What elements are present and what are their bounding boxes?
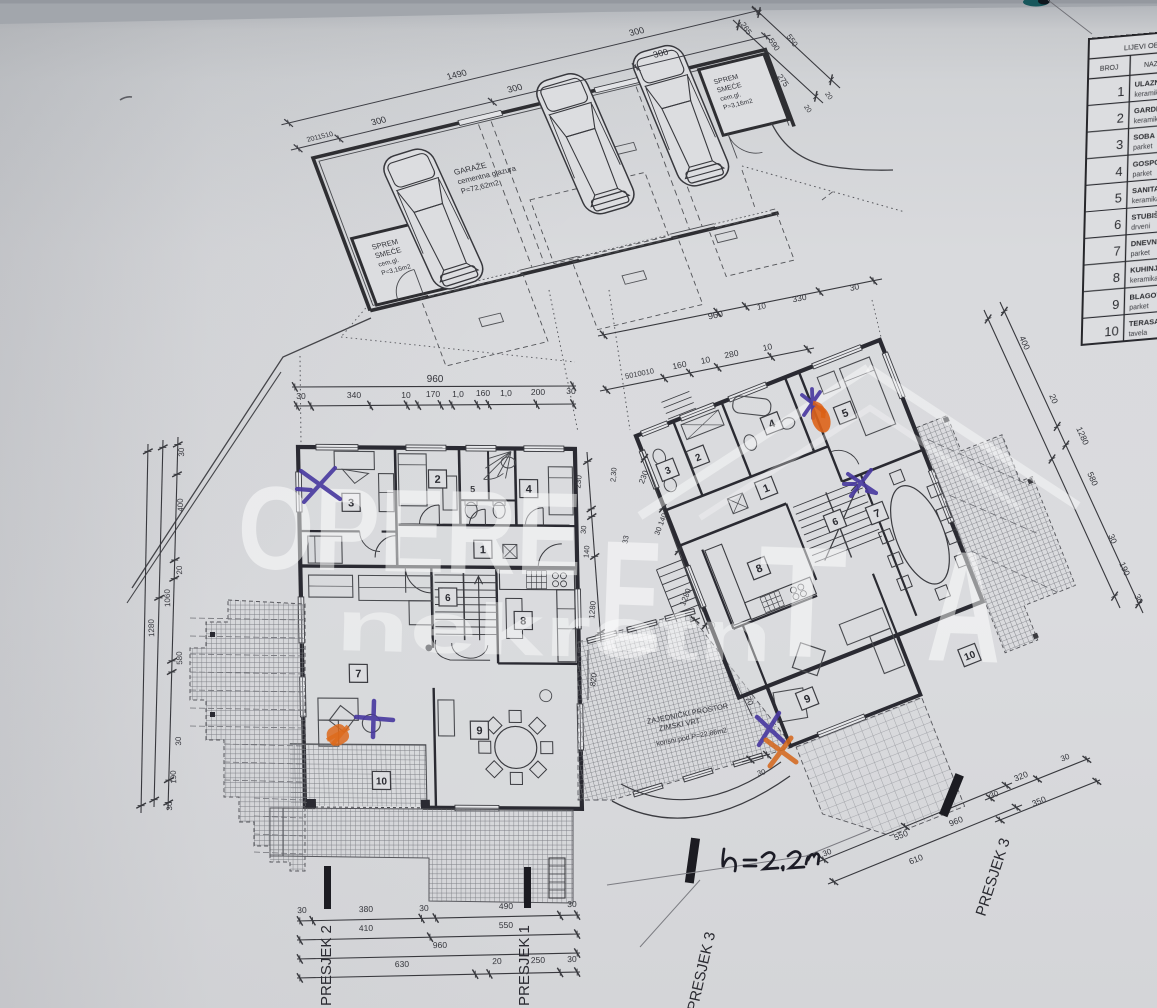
svg-text:400: 400 — [176, 498, 185, 512]
svg-text:960: 960 — [433, 940, 448, 950]
svg-text:960: 960 — [427, 374, 444, 385]
svg-text:340: 340 — [347, 390, 361, 400]
svg-text:9: 9 — [1112, 297, 1120, 313]
svg-text:410: 410 — [359, 923, 374, 933]
svg-text:10: 10 — [401, 390, 411, 400]
svg-text:380: 380 — [359, 904, 374, 914]
svg-text:190: 190 — [169, 770, 178, 784]
svg-text:30: 30 — [566, 386, 576, 396]
svg-text:580: 580 — [175, 651, 184, 665]
svg-text:1,0: 1,0 — [452, 389, 464, 399]
svg-text:7: 7 — [1113, 243, 1121, 259]
svg-text:5: 5 — [1115, 190, 1123, 206]
svg-text:4: 4 — [1115, 164, 1123, 180]
svg-text:PRESJEK 1: PRESJEK 1 — [516, 925, 533, 1006]
svg-text:OPERE: OPERE — [236, 462, 583, 601]
svg-text:30: 30 — [174, 736, 183, 746]
svg-text:200: 200 — [531, 387, 545, 397]
svg-text:550: 550 — [499, 920, 514, 930]
svg-text:20: 20 — [492, 956, 502, 966]
svg-text:490: 490 — [499, 901, 514, 911]
svg-text:7: 7 — [355, 668, 361, 680]
svg-text:10: 10 — [376, 776, 388, 787]
svg-text:9: 9 — [476, 725, 482, 737]
svg-text:6: 6 — [1114, 217, 1122, 233]
svg-text:3: 3 — [1116, 137, 1124, 153]
svg-text:1: 1 — [1117, 84, 1125, 100]
svg-text:160: 160 — [476, 388, 490, 398]
svg-text:1280: 1280 — [147, 618, 157, 637]
svg-text:1060: 1060 — [163, 588, 173, 607]
svg-text:2,30: 2,30 — [608, 467, 618, 482]
svg-text:nekretn: nekretn — [335, 586, 774, 677]
svg-text:30: 30 — [177, 447, 186, 457]
svg-text:170: 170 — [426, 389, 440, 399]
svg-text:PRESJEK 2: PRESJEK 2 — [318, 925, 335, 1006]
svg-text:10: 10 — [1104, 323, 1119, 339]
svg-text:30: 30 — [296, 391, 306, 401]
svg-text:20: 20 — [175, 565, 184, 575]
svg-text:A: A — [925, 518, 1005, 696]
svg-text:1,0: 1,0 — [500, 388, 512, 398]
svg-text:30: 30 — [567, 899, 577, 909]
svg-text:630: 630 — [395, 959, 410, 969]
svg-text:8: 8 — [1113, 270, 1121, 286]
svg-text:ULAZNI: ULAZNI — [1135, 78, 1157, 89]
svg-text:2: 2 — [1116, 110, 1124, 126]
svg-text:140: 140 — [581, 545, 591, 558]
svg-text:30: 30 — [297, 905, 307, 915]
svg-text:30: 30 — [419, 903, 429, 913]
svg-text:30: 30 — [567, 954, 577, 964]
svg-text:30: 30 — [165, 801, 174, 811]
